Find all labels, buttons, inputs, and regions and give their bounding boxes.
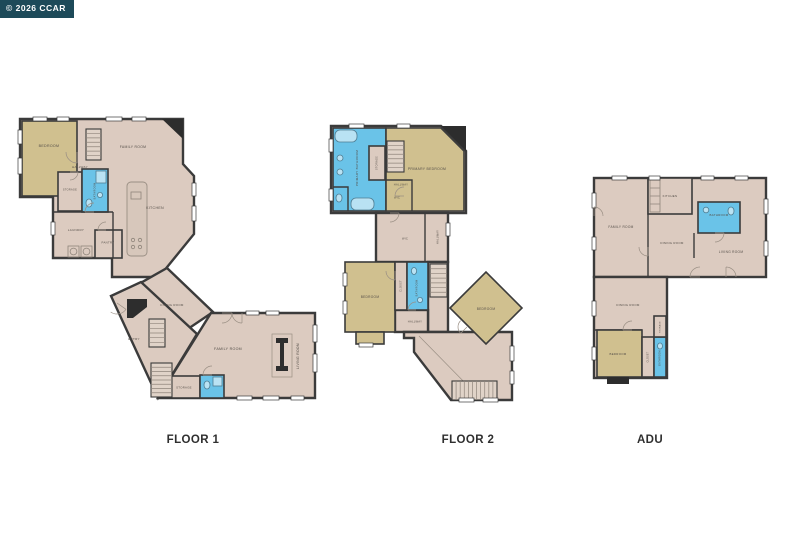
floor2-hallway-lower-label: HALLWAY <box>408 320 422 324</box>
copyright-watermark: © 2026 CCAR <box>0 0 74 18</box>
floor2-primary-bedroom-label: PRIMARY BEDROOM <box>408 167 446 171</box>
window <box>701 176 714 180</box>
floor2-hallway-upper-label: HALLWAY <box>394 183 408 187</box>
window <box>510 371 514 384</box>
window <box>33 117 47 121</box>
adu-storage-label: STORAGE <box>659 321 662 333</box>
adu-family-room-label: FAMILY ROOM <box>608 225 633 229</box>
floor1-kitchen-label: KITCHEN <box>146 206 164 210</box>
floor1-living-room-label: LIVING ROOM <box>296 343 300 369</box>
toilet-icon <box>658 343 663 349</box>
window <box>313 354 317 372</box>
window <box>106 117 122 121</box>
stairs-icon <box>151 363 172 397</box>
window <box>349 124 364 128</box>
floor1-plan: BEDROOM HALLWAY FAMILY ROOM STORAGE BATH… <box>18 117 317 400</box>
adu-dining-room-upper-label: DINING ROOM <box>660 241 684 245</box>
window <box>612 176 627 180</box>
floor1-laundry-label: LAUNDRY <box>68 228 84 232</box>
floor1-family-room-top-label: FAMILY ROOM <box>120 145 147 149</box>
window <box>446 223 450 236</box>
stairs-icon <box>86 129 101 160</box>
window <box>192 183 196 196</box>
window <box>592 301 596 316</box>
adu-bathroom-lower-label: BATHROOM <box>659 350 662 366</box>
floor1-pantry-label: PANTRY <box>102 241 115 245</box>
floor1-bedroom-label: BEDROOM <box>39 144 60 148</box>
window <box>764 241 768 256</box>
window <box>592 237 596 250</box>
floor2-wic-lower-label: WIC <box>402 237 408 241</box>
floor2-caption: FLOOR 2 <box>442 434 495 446</box>
window <box>237 396 252 400</box>
window <box>18 158 22 174</box>
floor2-primary-bathroom-label: PRIMARY BATHROOM <box>355 150 359 187</box>
stairs-icon <box>387 141 404 172</box>
floorplan-svg: BEDROOM HALLWAY FAMILY ROOM STORAGE BATH… <box>0 0 800 534</box>
floor2-wic-upper-label: WIC <box>394 196 400 200</box>
floor2-plan: PRIMARY BATHROOM STORAGE HALLWAY PRIMARY… <box>329 124 522 402</box>
window <box>266 311 279 315</box>
floor1-entry-label: ENTRY <box>128 337 140 341</box>
window <box>18 130 22 144</box>
window <box>510 346 514 361</box>
floor1-bathroom-upper-label: BATHROOM <box>94 183 97 200</box>
window <box>343 301 347 314</box>
window <box>192 206 196 221</box>
floor2-storage-label: STORAGE <box>376 156 379 170</box>
adu-caption: ADU <box>637 434 663 446</box>
window <box>246 311 259 315</box>
adu-bedroom-label: BEDROOM <box>609 352 626 356</box>
window <box>329 189 333 201</box>
adu-bathroom-main-room <box>698 202 740 233</box>
stairs-icon <box>149 319 165 347</box>
floor2-bedroom-left-label: BEDROOM <box>361 295 380 299</box>
window <box>359 343 373 347</box>
window <box>649 176 660 180</box>
adu-bathroom-main-label: BATHROOM <box>710 213 729 217</box>
adu-living-room-label: LIVING ROOM <box>719 250 744 254</box>
window <box>397 124 410 128</box>
window <box>483 398 498 402</box>
floor1-caption: FLOOR 1 <box>167 434 220 446</box>
adu-dining-room-lower-label: DINING ROOM <box>616 303 640 307</box>
floor2-closet-label: CLOSET <box>400 280 403 292</box>
floor2-bedroom-left-bump <box>356 332 384 344</box>
window <box>764 199 768 214</box>
adu-kitchen-label: KITCHEN <box>663 194 678 198</box>
window <box>132 117 146 121</box>
floor1-hallway-label: HALLWAY <box>72 165 88 169</box>
floor2-bathroom-label: BATHROOM <box>416 280 419 297</box>
floor1-storage-lower-label: STORAGE <box>176 386 192 390</box>
window <box>57 117 69 121</box>
window <box>329 139 333 152</box>
floor1-dining-room-label: DINING ROOM <box>160 303 184 307</box>
window <box>735 176 748 180</box>
window <box>313 325 317 342</box>
window <box>592 193 596 208</box>
floor2-hallway-vertical-label: HALLWAY <box>436 230 440 244</box>
window <box>51 222 55 235</box>
floorplan-image: BEDROOM HALLWAY FAMILY ROOM STORAGE BATH… <box>0 0 800 534</box>
floor1-family-room-label: FAMILY ROOM <box>214 347 242 351</box>
adu-entry-step <box>607 377 629 384</box>
floor2-bedroom-right-label: BEDROOM <box>477 307 496 311</box>
adu-closet-label: CLOSET <box>648 351 650 362</box>
window <box>291 396 304 400</box>
window <box>592 347 596 360</box>
window <box>343 273 347 286</box>
stairs-icon <box>430 264 447 297</box>
floor1-storage-upper-label: STORAGE <box>63 189 77 192</box>
stairs-icon <box>452 381 497 400</box>
kitchen-island <box>127 182 147 256</box>
window <box>459 398 474 402</box>
window <box>263 396 279 400</box>
adu-plan: KITCHEN FAMILY ROOM BATHROOM DINING ROOM… <box>592 176 768 384</box>
